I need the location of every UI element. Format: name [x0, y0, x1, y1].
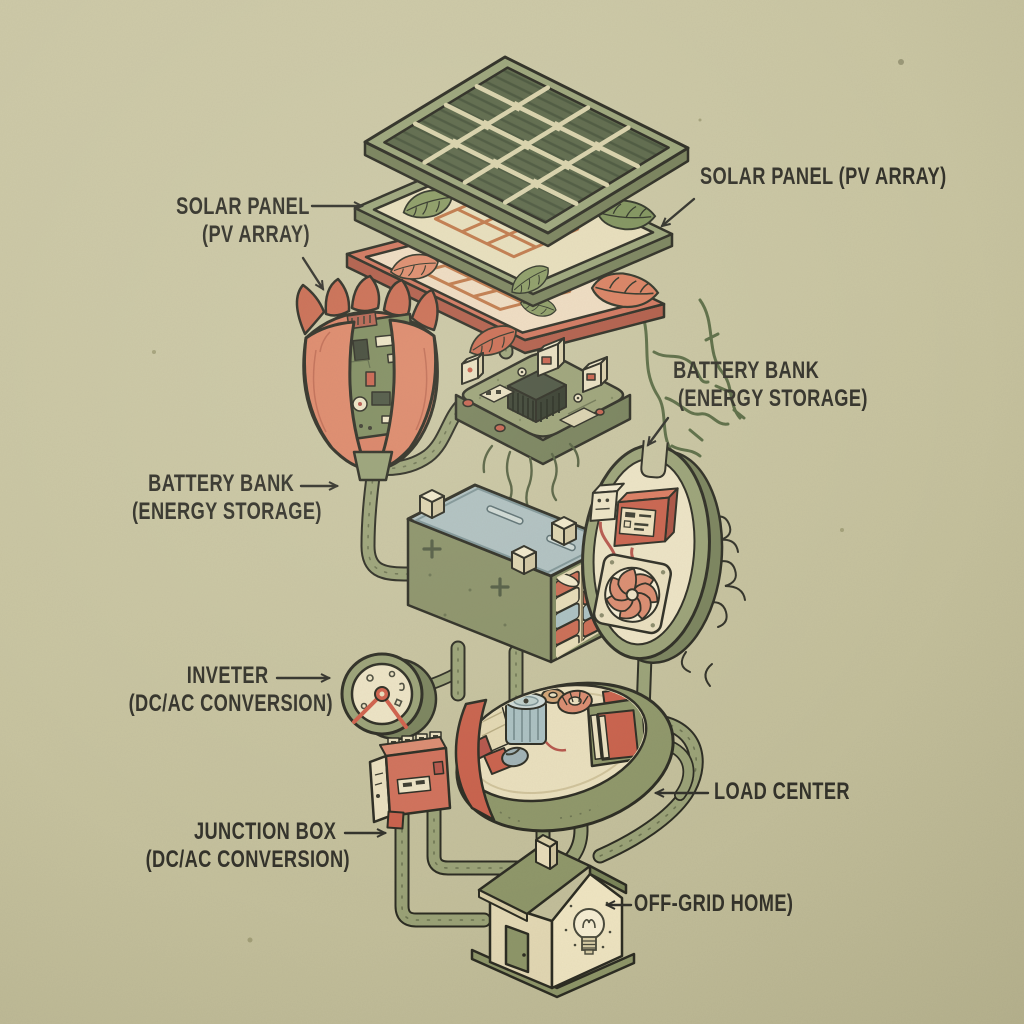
- label-solar-panel-left: SOLAR PANEL (PV ARRAY): [134, 193, 310, 249]
- label-off-grid-home: OFF-GRID HOME): [634, 890, 844, 918]
- label-line: (DC/AC CONVERSION): [146, 846, 350, 874]
- label-line: SOLAR PANEL: [176, 193, 310, 221]
- label-line: (PV ARRAY): [202, 221, 310, 249]
- label-battery-bank-left: BATTERY BANK (ENERGY STORAGE): [72, 470, 322, 526]
- label-inverter: INVETER (DC/AC CONVERSION): [64, 662, 333, 718]
- label-line: BATTERY BANK: [148, 470, 294, 498]
- label-line: (DC/AC CONVERSION): [129, 690, 333, 718]
- label-line: JUNCTION BOX: [194, 818, 336, 846]
- label-line: INVETER: [187, 662, 269, 690]
- label-line: SOLAR PANEL (PV ARRAY): [700, 163, 947, 191]
- label-line: LOAD CENTER: [714, 778, 850, 806]
- label-battery-bank-right: BATTERY BANK (ENERGY STORAGE): [648, 357, 844, 413]
- label-line: OFF-GRID HOME): [634, 890, 793, 918]
- label-junction-box: JUNCTION BOX (DC/AC CONVERSION): [81, 818, 350, 874]
- label-solar-panel-right: SOLAR PANEL (PV ARRAY): [700, 163, 1024, 191]
- label-line: (ENERGY STORAGE): [132, 498, 322, 526]
- label-line: BATTERY BANK: [673, 357, 819, 385]
- label-load-center: LOAD CENTER: [714, 778, 893, 806]
- illustration-canvas: SOLAR PANEL (PV ARRAY) SOLAR PANEL (PV A…: [0, 0, 1024, 1024]
- label-line: (ENERGY STORAGE): [678, 385, 868, 413]
